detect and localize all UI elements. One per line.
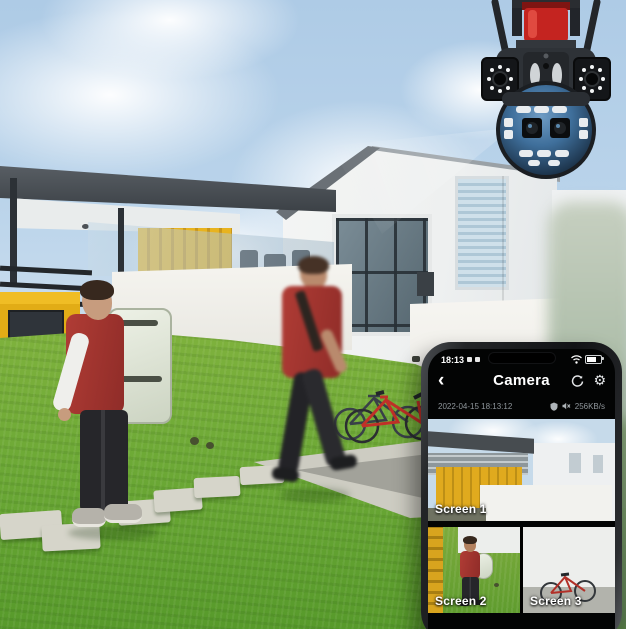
person-shadow: [280, 488, 350, 502]
status-time: 18:13: [441, 355, 464, 365]
wall-fixture: [412, 356, 420, 362]
antenna-left: [495, 2, 506, 54]
mini-ball: [494, 583, 499, 587]
notification-icon: [475, 357, 480, 362]
shoe: [104, 504, 142, 523]
shield-icon: [550, 402, 558, 411]
hair: [298, 256, 329, 274]
camera-feed-screen1[interactable]: Screen 1: [428, 419, 615, 521]
louver-window: [455, 176, 509, 290]
security-camera: [466, 0, 626, 180]
stepping-stone: [194, 476, 241, 498]
side-window: [417, 272, 434, 296]
smartphone: 18:13 ‹ Camera: [421, 342, 622, 629]
mini-red-shirt: [460, 551, 480, 579]
mini-window: [593, 455, 603, 473]
speaker-muted-icon: [562, 402, 571, 410]
refresh-button[interactable]: [571, 374, 584, 387]
settings-gear-button[interactable]: ⚙: [593, 373, 606, 387]
antenna-right: [586, 2, 597, 54]
bracket-arm: [512, 8, 522, 36]
mini-window: [569, 453, 581, 473]
feed-label: Screen 1: [435, 502, 487, 516]
center-lens: [543, 63, 549, 69]
hand: [58, 408, 71, 421]
status-bar: 18:13: [428, 352, 615, 367]
feed-label: Screen 3: [530, 594, 582, 608]
phone-screen: 18:13 ‹ Camera: [428, 349, 615, 629]
osd-timestamp: 2022-04-15 18:13:12: [438, 402, 512, 411]
ball: [206, 442, 214, 449]
shoe: [72, 508, 106, 527]
feed-label: Screen 2: [435, 594, 487, 608]
advert-scene: 18:13 ‹ Camera: [0, 0, 626, 629]
battery-icon: [585, 355, 602, 364]
person-shadow: [68, 526, 158, 540]
wifi-icon: [571, 355, 582, 364]
leg: [301, 367, 348, 469]
mini-white-wall: [480, 485, 612, 521]
bracket-arm: [570, 8, 580, 36]
network-speed: 256KB/s: [575, 402, 605, 411]
camera-feed-screen2[interactable]: Screen 2: [428, 527, 520, 613]
standing-man-backpack: [50, 280, 180, 542]
shoe: [271, 466, 300, 483]
sensor-dot: [544, 54, 549, 59]
dome-collar: [502, 92, 590, 106]
camera-feed-screen3[interactable]: Screen 3: [523, 527, 615, 613]
feed-row: Screen 2 Screen 3: [428, 527, 615, 613]
hair: [80, 280, 114, 300]
ball: [190, 437, 199, 445]
siren-highlight: [528, 10, 537, 38]
black-pants: [80, 410, 128, 512]
downlight: [82, 224, 89, 229]
notification-icon: [467, 357, 472, 362]
app-header: ‹ Camera ⚙: [428, 369, 615, 395]
walking-man-blurred: [270, 256, 362, 504]
mini-hair: [463, 536, 477, 544]
info-bar: 2022-04-15 18:13:12 256KB/s: [428, 397, 615, 415]
